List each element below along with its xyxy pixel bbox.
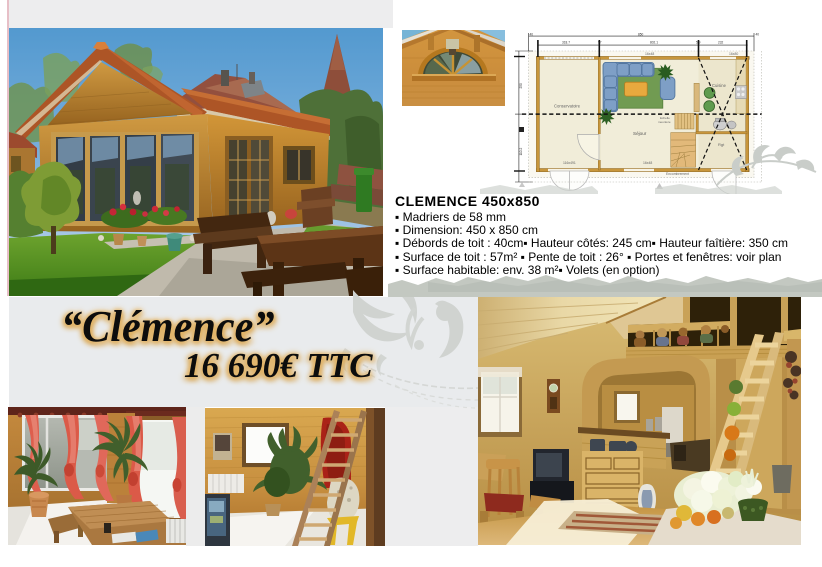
svg-text:318.7: 318.7 (562, 41, 570, 45)
svg-text:Conservatoire: Conservatoire (554, 104, 581, 109)
svg-text:232: 232 (718, 41, 724, 45)
svg-text:Cuisine: Cuisine (712, 83, 727, 88)
svg-text:5.9: 5.9 (696, 41, 701, 45)
svg-text:16x48: 16x48 (643, 161, 652, 165)
svg-text:meunière: meunière (658, 120, 671, 124)
svg-text:40: 40 (756, 33, 760, 37)
svg-text:Séjour: Séjour (633, 131, 647, 136)
svg-text:16x48: 16x48 (645, 52, 654, 56)
svg-text:110.2: 110.2 (519, 148, 523, 156)
svg-text:57: 57 (598, 41, 602, 45)
svg-text:Encombrement: Encombrement (666, 172, 689, 176)
svg-text:850: 850 (638, 33, 644, 37)
svg-text:802.1: 802.1 (650, 41, 658, 45)
svg-text:16x80: 16x80 (729, 52, 738, 56)
svg-text:250: 250 (519, 83, 523, 89)
svg-text:40: 40 (530, 33, 534, 37)
svg-text:116x491: 116x491 (563, 161, 576, 165)
